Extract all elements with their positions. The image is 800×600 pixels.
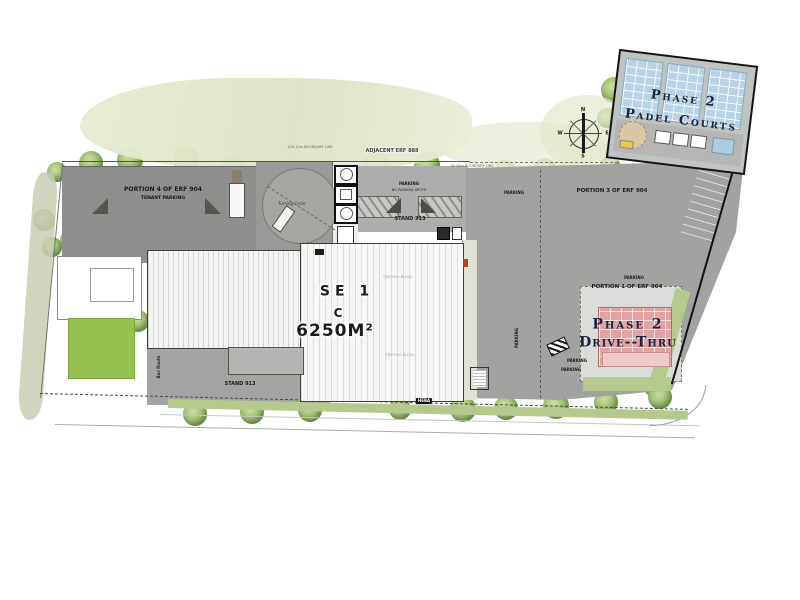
portion3-label: PORTION 3 OF ERF 904 (577, 188, 648, 195)
drive-thru-label-line1: Phase 2 (592, 317, 663, 334)
island-triangle (421, 198, 436, 213)
compass-south-label: S (581, 153, 584, 159)
boundary-line-top (62, 161, 470, 162)
main-building-area-label: 6250M² (296, 321, 374, 341)
tank-square-icon (340, 189, 352, 200)
parking-label-b: PARKING (504, 191, 524, 196)
tank-circle-icon (340, 168, 353, 181)
signage-box (470, 367, 489, 390)
utility-box-dark (437, 227, 450, 240)
parking-label-d: PARKING (567, 359, 587, 364)
stand913-bottom-label: STAND 913 (224, 381, 255, 387)
building-note-a: EXISTING BLOCK (383, 275, 412, 279)
rooftop-marker (315, 249, 324, 255)
right-lot-dashed-line (540, 170, 541, 398)
drive-thru-label-line2: Drive--Thru (579, 335, 677, 352)
compass-east-label: E (605, 130, 608, 136)
compass-north-label: N (581, 107, 586, 113)
padel-room (690, 134, 707, 149)
compass-needle (582, 113, 585, 153)
stand913-top-label: STAND 913 (394, 216, 425, 222)
adjacent-erf-label: ADJACENT ERF 888 (365, 148, 418, 154)
utility-box-light (452, 227, 462, 240)
parking-label-a: PARKING (399, 182, 419, 187)
compass-west-label: W (557, 130, 562, 136)
tank-box-3 (334, 204, 358, 224)
parking-label-c: PARKING (624, 276, 644, 281)
compass-rose: N W E S (556, 105, 610, 161)
padel-room (654, 130, 671, 145)
tenant-parking-label: TENANT PARKING (141, 195, 185, 200)
entrance-marker (463, 259, 468, 267)
tank-circle-icon (340, 207, 353, 220)
tank-box-1 (334, 165, 358, 185)
building-note-b: EXISTING BLOCK (385, 353, 414, 357)
left-outbuilding-step (90, 268, 134, 302)
island-triangle (92, 198, 108, 214)
island-triangle (205, 198, 221, 214)
small-structure (229, 183, 245, 218)
site-plan: Phase 2 Padel Courts N W E S ADJACENT ER… (0, 0, 800, 600)
parking-label-e: PARKING (561, 368, 581, 373)
grass-wash-top (80, 78, 472, 170)
boundary-right-label: 99.48m BOUNDARY LINE (450, 164, 493, 168)
car-icon (619, 140, 634, 150)
turning-circle-label: Turning Circle (278, 202, 305, 207)
parking-label-f: PARKING (515, 328, 520, 348)
portion1-label: PORTION 1 OF ERF 904 (592, 284, 663, 291)
main-building-label-line2: C (334, 306, 343, 320)
bus-route-label: Bus Route (157, 356, 162, 379)
island-triangle (386, 198, 401, 213)
padel-pool (711, 137, 735, 156)
boundary-left-label: 100.12m BOUNDARY LINE (287, 145, 332, 149)
road-name-label: HEBA (416, 398, 432, 404)
boundary-line-top-right (470, 162, 618, 163)
padel-courts-structure: Phase 2 Padel Courts (606, 49, 758, 175)
lawn (68, 318, 135, 379)
building-annex (228, 347, 304, 375)
tank-box-2 (334, 185, 358, 205)
padel-room (672, 132, 689, 147)
main-building-label-line1: SE 1 (320, 284, 374, 301)
portion4-label: PORTION 4 OF ERF 904 (124, 185, 202, 192)
no-parking-label: NO PARKING SPOTS (392, 188, 426, 192)
drive-thru-canopy (602, 352, 670, 367)
